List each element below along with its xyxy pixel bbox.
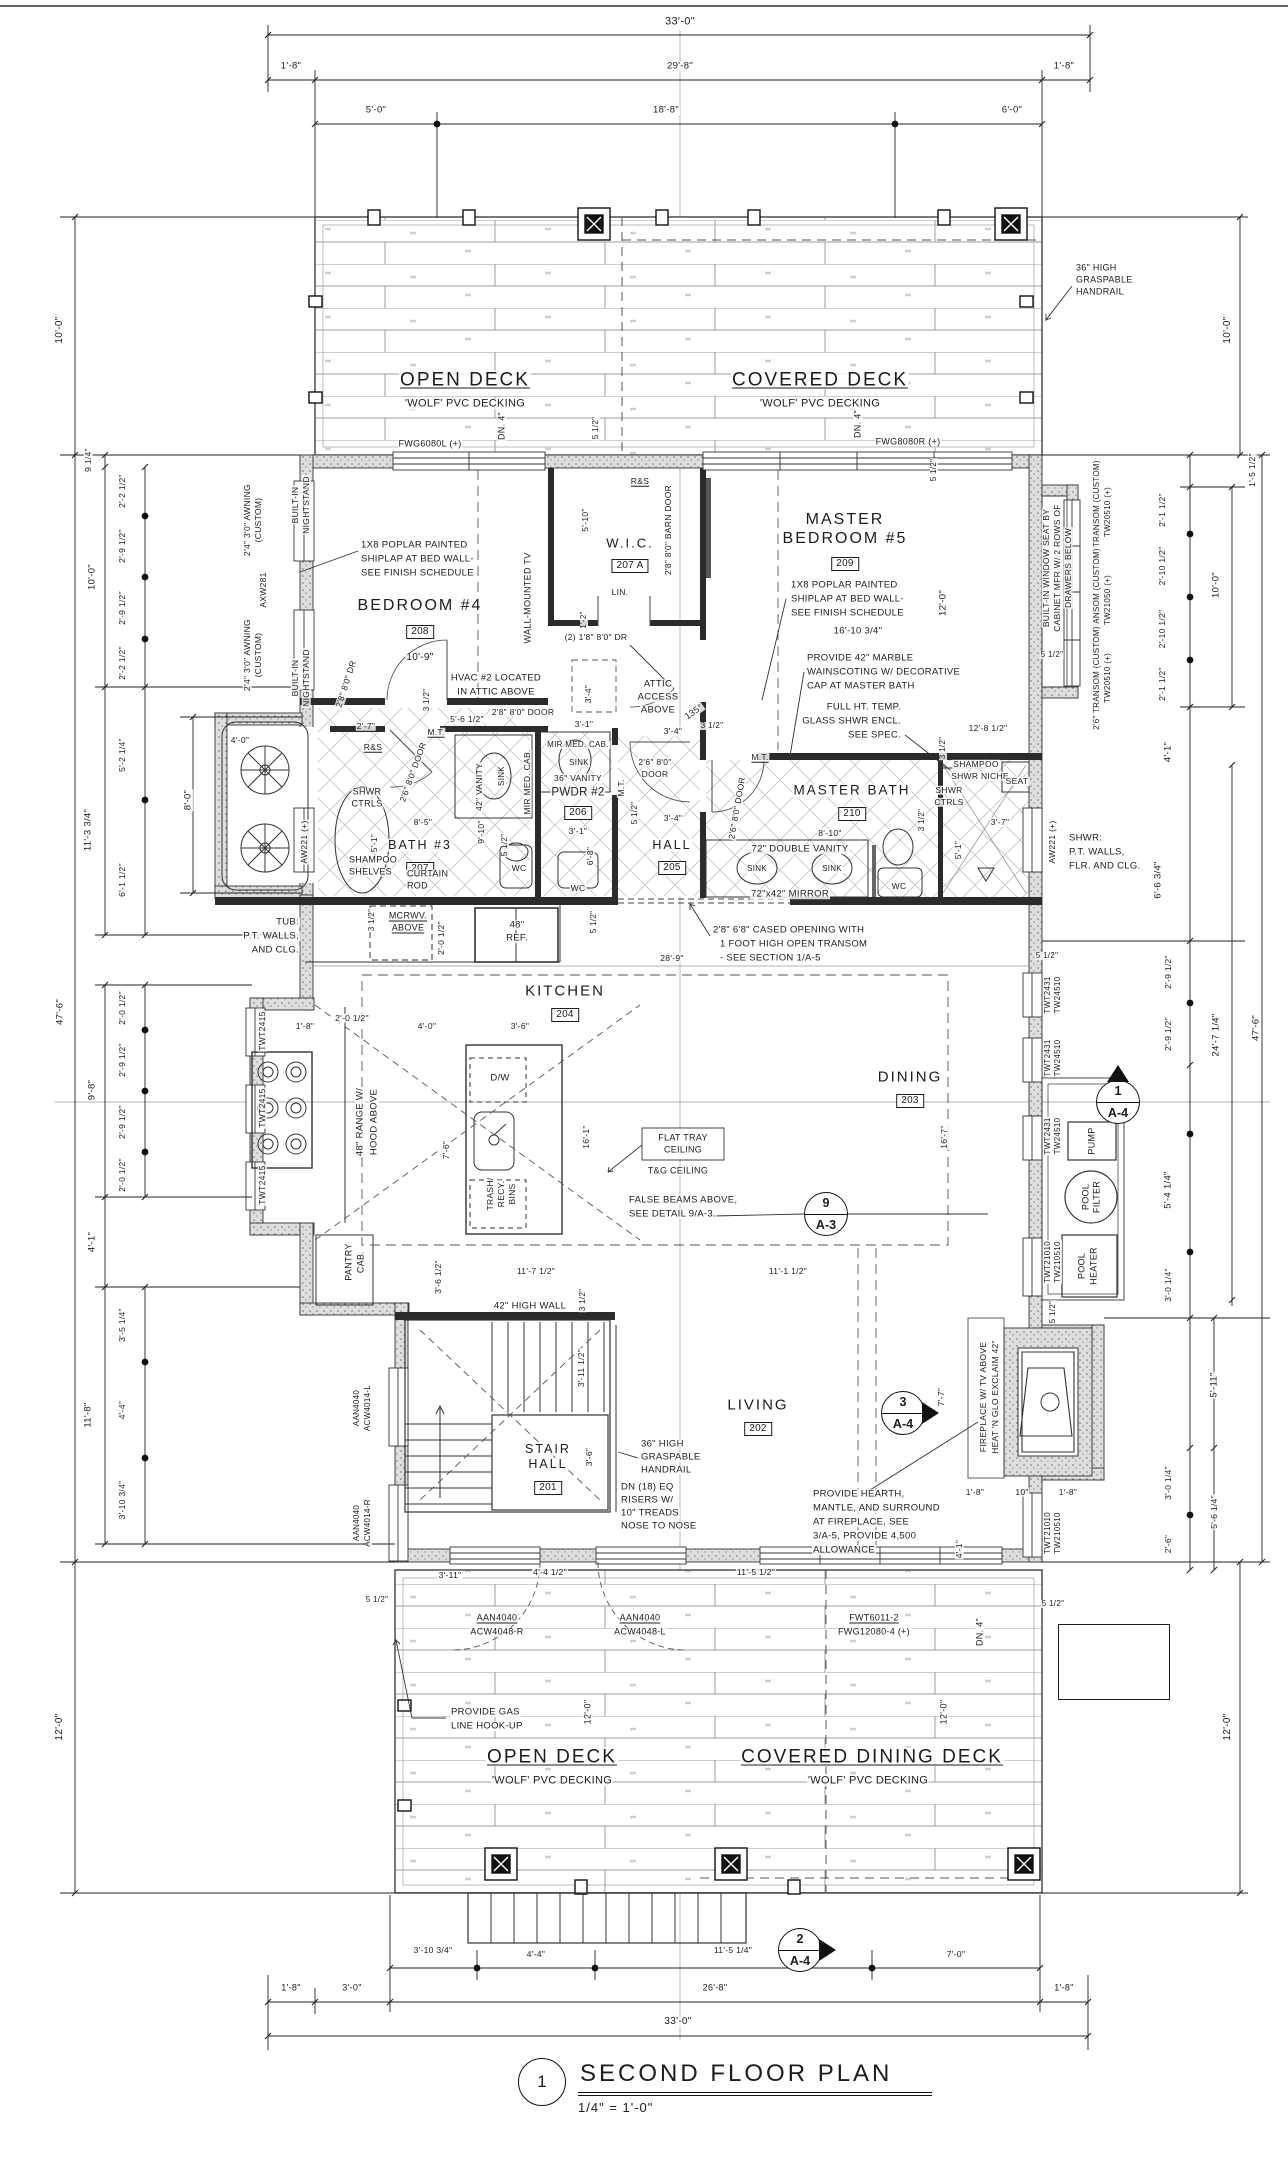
plan-number-circle: 1 (518, 2058, 566, 2106)
plan-title: SECOND FLOOR PLAN (578, 2058, 932, 2096)
section-marker-1-a4: 1 A-4 (1096, 1080, 1140, 1124)
floor-plan-drawing (0, 0, 1288, 2166)
leaders (300, 286, 1072, 1718)
plan-scale: 1/4" = 1'-0" (578, 2100, 932, 2115)
section-arrow-icon (922, 1402, 939, 1424)
plan-number: 1 (537, 2072, 546, 2092)
detail-marker-9-a3: 9 A-3 (804, 1192, 848, 1236)
floor-plan-sheet: 33'-0"1'-8"29'-8"1'-8"5'-0"18'-8"6'-0"OP… (0, 0, 1288, 2166)
tile-floors (318, 708, 1036, 897)
holiday-note-box (1058, 1624, 1170, 1700)
section-marker-3-a4: 3 A-4 (881, 1391, 925, 1435)
openings (246, 452, 1080, 1564)
title-block: 1 SECOND FLOOR PLAN 1/4" = 1'-0" (518, 2058, 932, 2115)
section-arrow-icon (1107, 1065, 1129, 1082)
section-marker-2-a4: 2 A-4 (778, 1928, 822, 1972)
section-arrow-icon (819, 1939, 836, 1961)
